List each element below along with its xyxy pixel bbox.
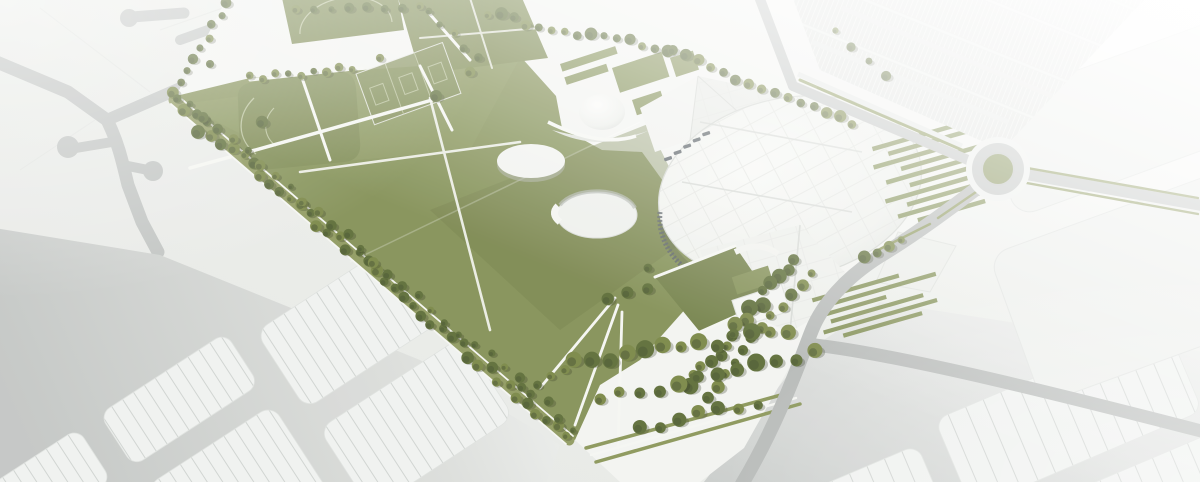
atmospheric-fog: [0, 0, 1200, 482]
architectural-rendering: [0, 0, 1200, 482]
haze-veil: [0, 0, 1200, 482]
render-canvas: [0, 0, 1200, 482]
